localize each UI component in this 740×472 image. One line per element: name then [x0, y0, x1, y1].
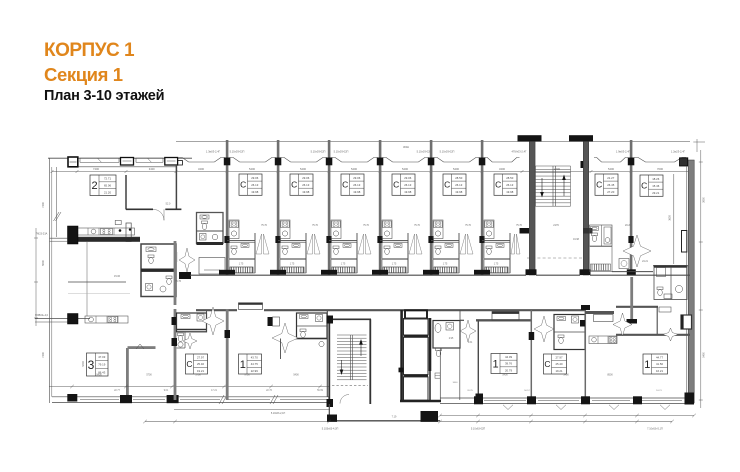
svg-text:17.21: 17.21 — [211, 390, 217, 392]
svg-text:2176: 2176 — [553, 224, 559, 227]
svg-text:1.75: 1.75 — [239, 264, 244, 266]
svg-text:3400: 3400 — [149, 167, 155, 171]
svg-text:5.10х03-02П: 5.10х03-02П — [311, 149, 326, 153]
svg-text:41.50: 41.50 — [656, 362, 663, 366]
svg-text:19.98: 19.98 — [573, 239, 579, 241]
svg-text:52.0: 52.0 — [166, 202, 171, 205]
svg-text:9400: 9400 — [96, 373, 102, 376]
svg-text:С: С — [240, 180, 246, 190]
svg-text:С: С — [291, 180, 297, 190]
svg-text:7400: 7400 — [41, 352, 45, 358]
svg-text:3600: 3600 — [703, 197, 706, 203]
svg-text:72.71: 72.71 — [104, 177, 111, 181]
svg-text:75.70: 75.70 — [363, 225, 369, 227]
svg-text:3600: 3600 — [669, 215, 672, 221]
svg-text:ПОВ02+4,0: ПОВ02+4,0 — [35, 314, 49, 317]
svg-text:16.21: 16.21 — [656, 369, 663, 373]
svg-text:26.45: 26.45 — [607, 183, 614, 187]
svg-text:7400: 7400 — [41, 202, 45, 208]
svg-text:26.13: 26.13 — [506, 183, 513, 187]
svg-text:5.10х03-02П: 5.10х03-02П — [417, 149, 432, 153]
svg-text:15.46: 15.46 — [652, 184, 659, 188]
svg-text:26.13: 26.13 — [404, 183, 411, 187]
svg-text:300А: 300А — [403, 145, 409, 149]
svg-text:7000: 7000 — [657, 167, 663, 171]
svg-text:19.98: 19.98 — [353, 190, 360, 194]
svg-text:5400: 5400 — [249, 167, 255, 171]
svg-text:1: 1 — [644, 359, 650, 371]
svg-text:3400: 3400 — [499, 167, 505, 171]
svg-text:С: С — [596, 180, 602, 190]
svg-text:75.70: 75.70 — [261, 225, 267, 227]
svg-text:22.76: 22.76 — [266, 390, 272, 392]
svg-text:39.76: 39.76 — [505, 362, 512, 366]
svg-text:19.21: 19.21 — [197, 369, 204, 373]
svg-text:5600: 5600 — [41, 260, 45, 266]
svg-text:29.06: 29.06 — [353, 176, 360, 180]
svg-text:19.98: 19.98 — [506, 190, 513, 194]
svg-text:С: С — [444, 180, 450, 190]
svg-text:С: С — [393, 180, 399, 190]
svg-text:47.03: 47.03 — [98, 355, 105, 359]
svg-text:27.20: 27.20 — [607, 190, 614, 194]
svg-text:1.3м03-2,4Г: 1.3м03-2,4Г — [206, 149, 221, 153]
svg-text:5400: 5400 — [703, 352, 706, 358]
svg-text:19.98: 19.98 — [455, 190, 462, 194]
svg-text:5.10х03-02П: 5.10х03-02П — [440, 149, 455, 153]
svg-text:С: С — [641, 181, 647, 191]
svg-text:5400: 5400 — [300, 167, 306, 171]
svg-text:5700: 5700 — [146, 373, 152, 376]
svg-text:5.10Зх63-4,3П: 5.10Зх63-4,3П — [322, 428, 339, 431]
svg-text:5400: 5400 — [608, 167, 614, 171]
svg-text:26.13: 26.13 — [302, 183, 309, 187]
svg-text:56.69: 56.69 — [317, 390, 323, 392]
svg-text:28.50: 28.50 — [455, 176, 462, 180]
svg-text:21.20: 21.20 — [104, 190, 111, 194]
svg-text:9.01: 9.01 — [164, 390, 169, 392]
svg-text:С: С — [544, 359, 550, 369]
svg-text:26.13: 26.13 — [455, 183, 462, 187]
svg-text:С: С — [186, 359, 192, 369]
svg-text:2.95: 2.95 — [449, 338, 454, 340]
svg-text:2400: 2400 — [554, 167, 560, 171]
svg-text:7.10х63+5,1П: 7.10х63+5,1П — [647, 428, 663, 431]
svg-text:1.61: 1.61 — [468, 342, 473, 344]
svg-text:20.20: 20.20 — [625, 224, 632, 227]
svg-text:29.06: 29.06 — [404, 176, 411, 180]
svg-text:25.40: 25.40 — [556, 362, 563, 366]
svg-text:5400: 5400 — [402, 167, 408, 171]
svg-text:26.13: 26.13 — [251, 183, 258, 187]
svg-text:16.21: 16.21 — [656, 390, 662, 392]
svg-text:75.70: 75.70 — [465, 225, 471, 227]
svg-text:5.10х63-2,1П: 5.10х63-2,1П — [271, 412, 286, 415]
svg-text:3400: 3400 — [198, 167, 204, 171]
svg-text:19.98: 19.98 — [404, 190, 411, 194]
svg-text:5.10х63-02П: 5.10х63-02П — [471, 428, 486, 431]
svg-text:3: 3 — [88, 358, 95, 372]
svg-text:5400: 5400 — [453, 167, 459, 171]
svg-text:5400: 5400 — [82, 361, 85, 367]
svg-text:4ПУх03-2,4Г: 4ПУх03-2,4Г — [512, 149, 527, 153]
svg-text:24.21: 24.21 — [642, 261, 648, 263]
svg-text:43.70: 43.70 — [251, 356, 258, 360]
svg-text:5400: 5400 — [293, 373, 299, 376]
svg-text:21.27: 21.27 — [607, 176, 614, 180]
svg-text:75.70: 75.70 — [414, 225, 420, 227]
svg-text:20.79: 20.79 — [505, 368, 512, 372]
svg-text:75.70: 75.70 — [516, 225, 522, 227]
svg-text:1.75: 1.75 — [290, 264, 295, 266]
svg-text:22.99: 22.99 — [251, 369, 258, 373]
svg-text:2: 2 — [91, 180, 97, 192]
svg-text:7400: 7400 — [93, 167, 99, 171]
svg-text:15.06: 15.06 — [114, 275, 121, 278]
svg-text:75.76: 75.76 — [175, 280, 182, 283]
svg-text:27.97: 27.97 — [197, 356, 204, 360]
svg-text:19.98: 19.98 — [302, 190, 309, 194]
svg-text:3400: 3400 — [453, 382, 459, 384]
svg-text:С: С — [495, 180, 501, 190]
svg-text:28.50: 28.50 — [506, 176, 513, 180]
svg-text:1.75: 1.75 — [494, 264, 499, 266]
svg-text:79.19: 79.19 — [98, 363, 105, 367]
svg-text:25.40: 25.40 — [197, 362, 204, 366]
svg-text:29.06: 29.06 — [251, 176, 258, 180]
svg-text:5400: 5400 — [502, 373, 508, 376]
svg-text:5.10х03-02П: 5.10х03-02П — [230, 149, 245, 153]
svg-text:1: 1 — [240, 359, 246, 371]
svg-text:7М23-23А: 7М23-23А — [36, 232, 48, 235]
svg-text:С: С — [342, 180, 348, 190]
svg-text:29.06: 29.06 — [302, 176, 309, 180]
svg-text:1.2м23-2,4Г: 1.2м23-2,4Г — [671, 149, 686, 153]
svg-text:22.77: 22.77 — [114, 390, 120, 392]
svg-text:8500: 8500 — [607, 373, 613, 376]
svg-text:19.98: 19.98 — [251, 190, 258, 194]
svg-text:9700: 9700 — [244, 373, 250, 376]
svg-text:44.77: 44.77 — [656, 356, 663, 360]
svg-text:26.13: 26.13 — [353, 183, 360, 187]
svg-text:1.75: 1.75 — [341, 264, 346, 266]
svg-text:44.75: 44.75 — [251, 362, 258, 366]
svg-text:44.09: 44.09 — [505, 355, 512, 359]
svg-text:1.75: 1.75 — [443, 264, 448, 266]
svg-text:18.26: 18.26 — [652, 177, 659, 181]
svg-text:1.75: 1.75 — [392, 264, 397, 266]
svg-text:5400: 5400 — [563, 373, 569, 376]
svg-text:5400: 5400 — [351, 167, 357, 171]
svg-text:1.9м03-2,4Г: 1.9м03-2,4Г — [616, 149, 631, 153]
svg-text:1: 1 — [492, 358, 498, 370]
svg-text:50.57: 50.57 — [524, 390, 530, 392]
svg-text:5.10х03-02П: 5.10х03-02П — [334, 149, 349, 153]
svg-text:7.19: 7.19 — [392, 416, 397, 419]
svg-text:75.70: 75.70 — [312, 225, 318, 227]
svg-text:65.06: 65.06 — [104, 183, 111, 187]
svg-text:29.21: 29.21 — [652, 191, 659, 195]
svg-text:27.97: 27.97 — [556, 356, 563, 360]
svg-text:19.21: 19.21 — [556, 369, 563, 373]
svg-text:20.25: 20.25 — [467, 390, 473, 392]
